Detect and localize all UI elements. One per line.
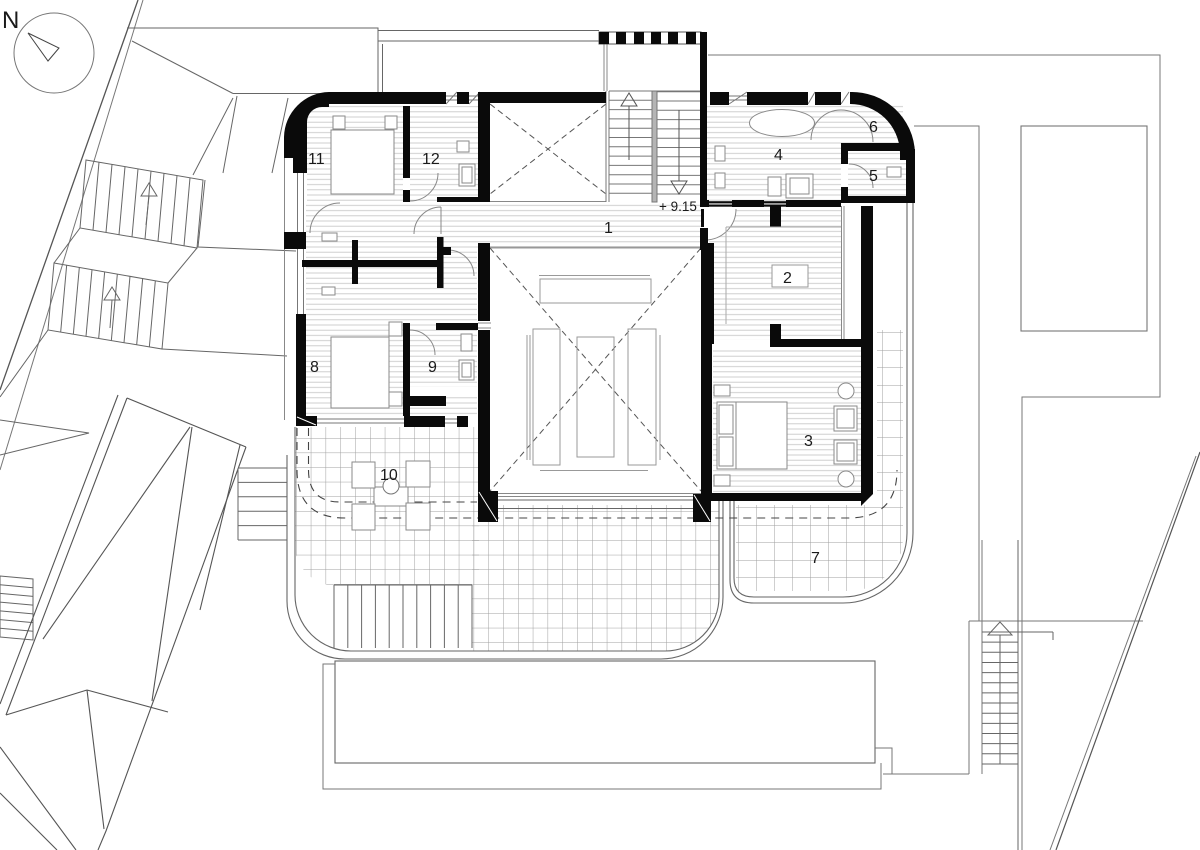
svg-text:+ 9.15: + 9.15 (659, 199, 697, 214)
svg-text:8: 8 (310, 359, 319, 376)
svg-text:7: 7 (811, 550, 820, 567)
svg-text:11: 11 (308, 151, 325, 168)
svg-text:10: 10 (380, 467, 398, 484)
svg-text:4: 4 (774, 147, 783, 164)
svg-text:N: N (2, 7, 19, 34)
svg-text:6: 6 (869, 119, 878, 136)
svg-text:9: 9 (428, 359, 437, 376)
svg-text:3: 3 (804, 433, 813, 450)
svg-text:2: 2 (783, 270, 792, 287)
svg-text:5: 5 (869, 168, 878, 185)
svg-text:1: 1 (604, 220, 613, 237)
svg-text:12: 12 (422, 151, 440, 168)
